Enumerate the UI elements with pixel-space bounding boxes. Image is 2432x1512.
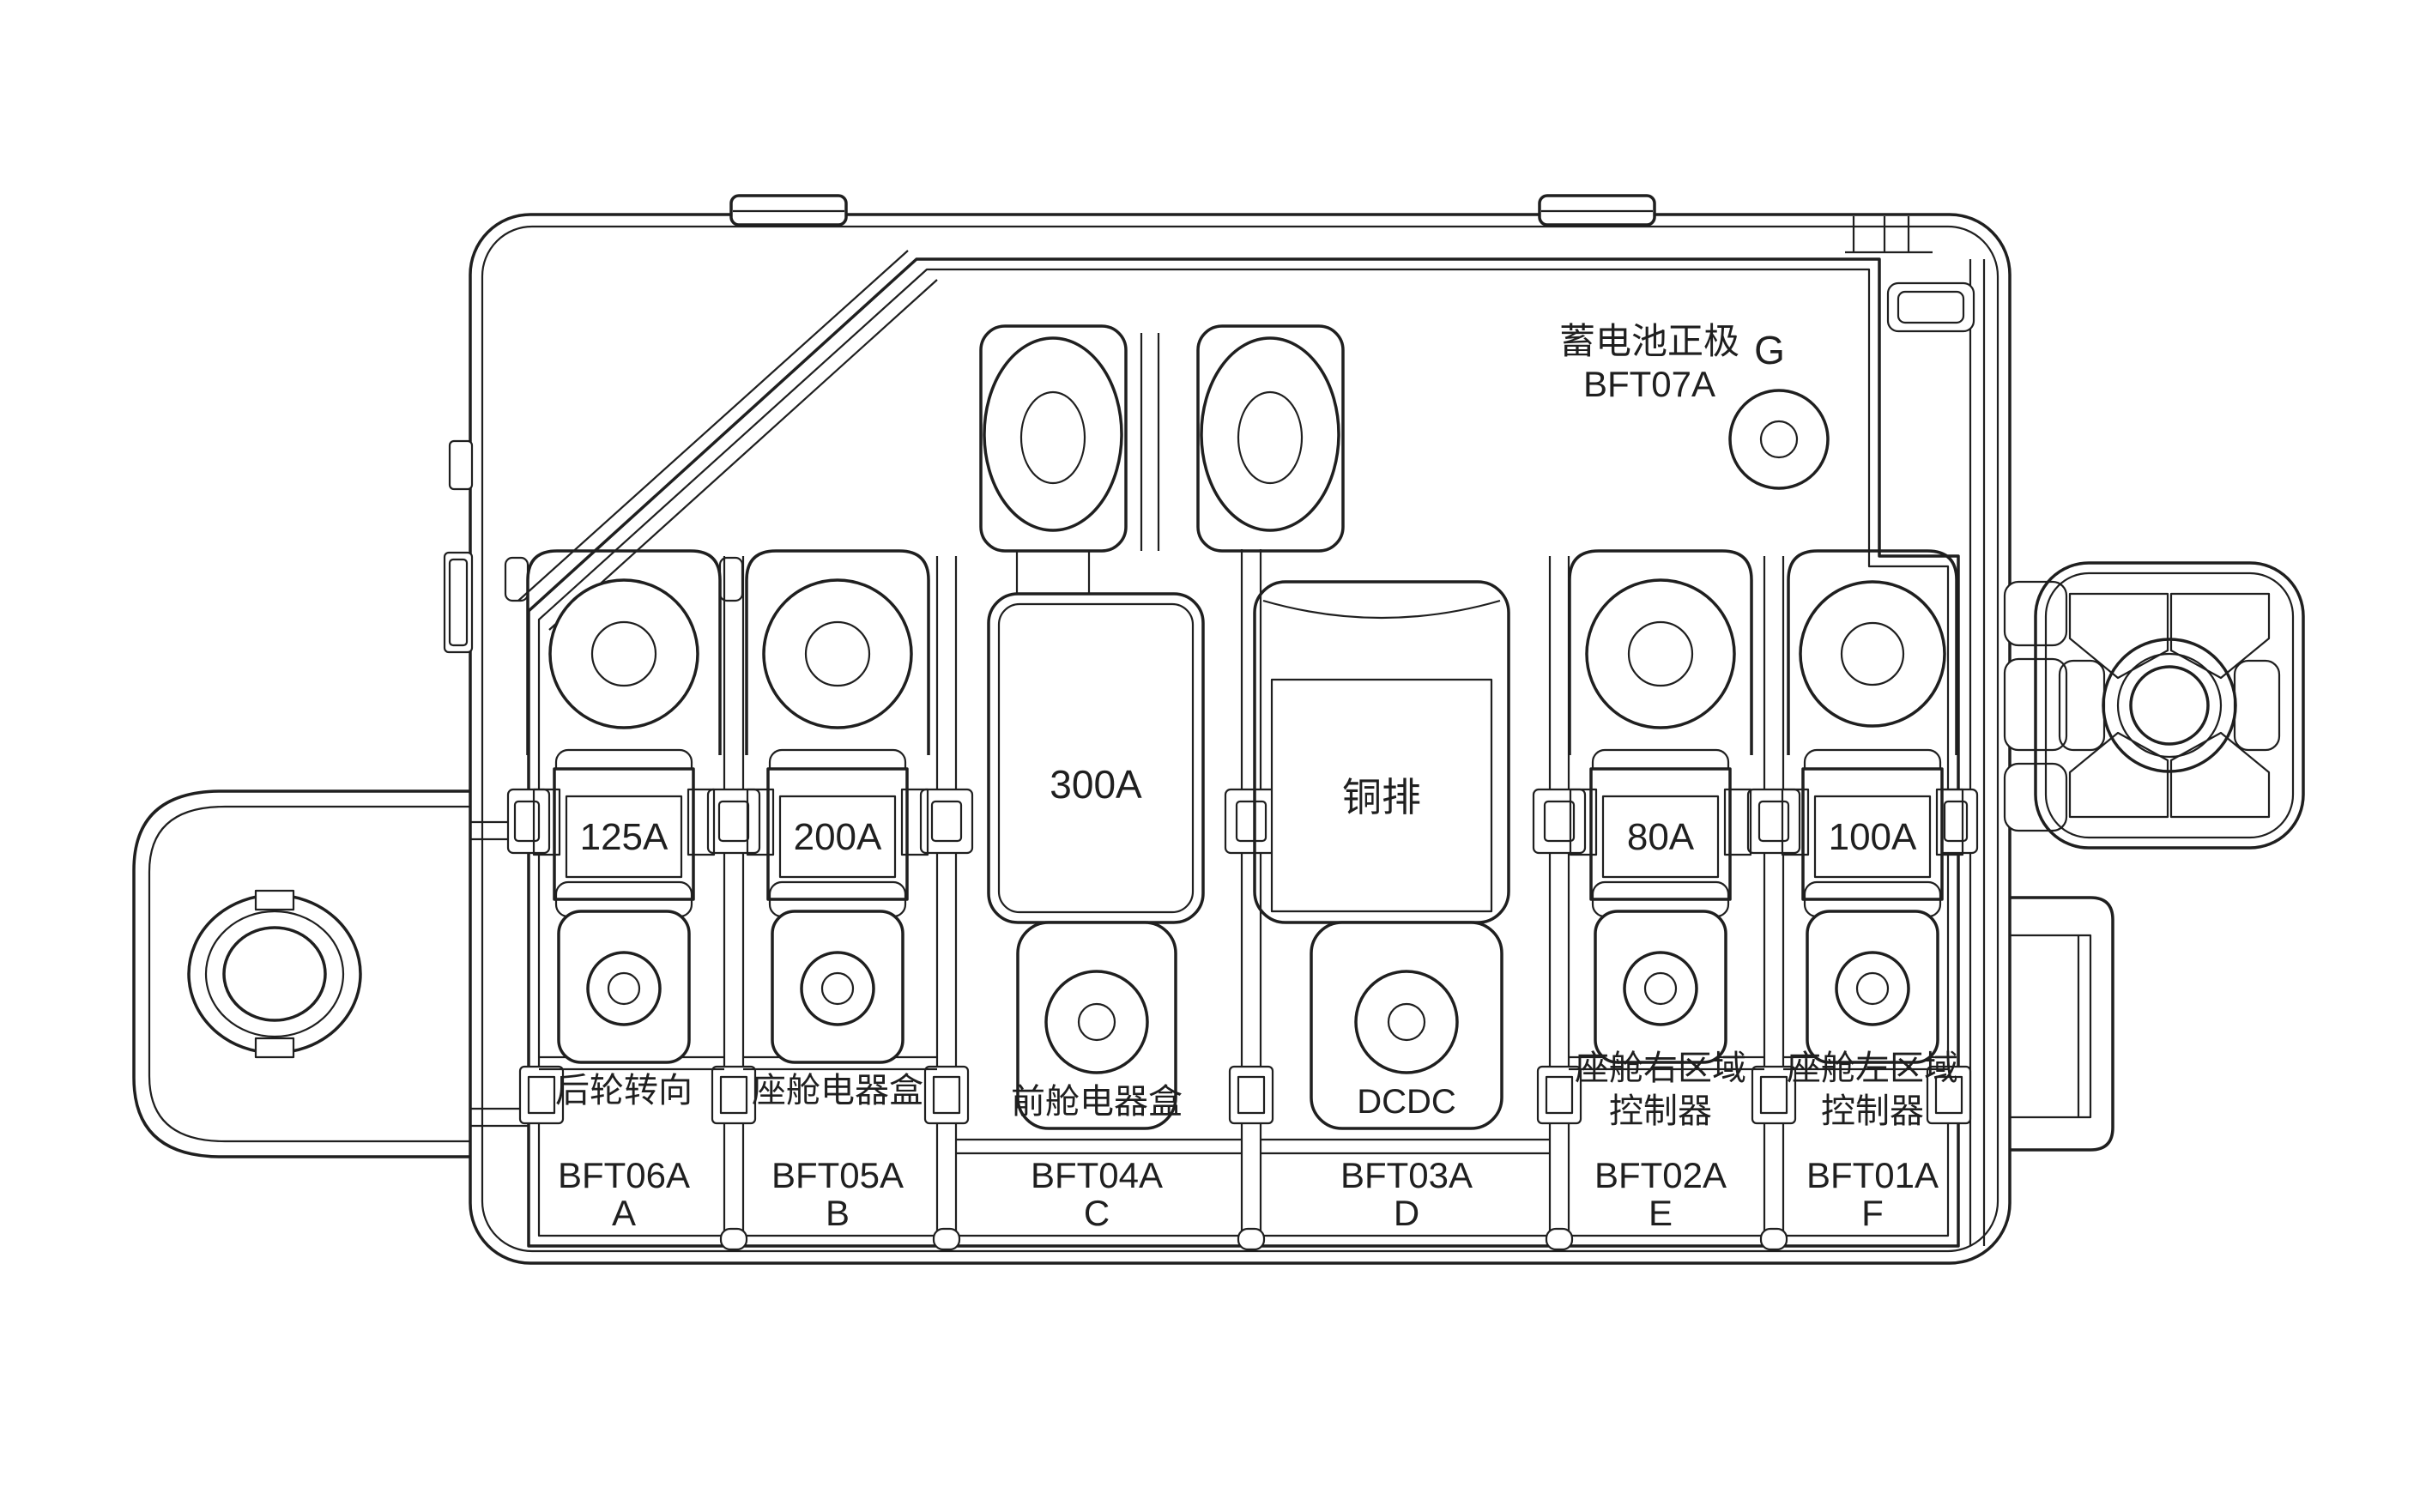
fusebox-diagram-svg: 125A 后轮转向 BFT06A A 200A 座舱电器盒 BFT05A B [0,0,2432,1512]
fuse-e-slot-letter: E [1649,1193,1673,1233]
rib-pocket-top-right [2171,594,2269,678]
terminal-lug-pad [981,326,1126,551]
fuse-a-slot-letter: A [612,1193,636,1233]
fuse-c-circuit-label: 前舱电器盒 [1011,1083,1183,1121]
fuse-a-code: BFT06A [558,1155,690,1195]
terminal-lug-hole [1238,392,1302,483]
terminal-lug-hole [1021,392,1085,483]
right-bracket-boss-hole [2103,639,2235,771]
lower-terminal-ring [802,953,874,1025]
divider-clamp-blocks [508,789,1977,853]
lower-terminal-ring [1046,971,1147,1073]
left-bracket-outer [134,791,470,1157]
fusebox-technical-diagram: 125A 后轮转向 BFT06A A 200A 座舱电器盒 BFT05A B [0,0,2432,1512]
rib-pocket-right [2235,661,2279,750]
rib-pocket-bottom-left [2070,733,2168,817]
left-bracket-inner [149,807,470,1141]
fuse-module-b: 200A 座舱电器盒 BFT05A B [747,551,929,1233]
fuse-b-rating-label: 200A [794,816,882,858]
terminal-g-label: G [1754,328,1785,372]
right-mounting-bracket [2005,563,2303,848]
left-wall-notch-upper [450,441,472,489]
fuse-c-slot-letter: C [1084,1193,1110,1233]
fuse-module-f: 100A 座舱左区域 控制器 BFT01A F [1782,551,1963,1233]
fuse-f-rating-label: 100A [1829,816,1917,858]
oval-hole-key-notch-top [256,891,293,910]
divider-foot [1761,1229,1787,1249]
terminal-lug-pad [1198,326,1343,551]
fuse-body-300a [989,594,1203,922]
lower-terminal-ring [1356,971,1457,1073]
battery-positive-title: 蓄电池正极 [1559,321,1739,361]
fuse-b-code: BFT05A [771,1155,904,1195]
battery-positive-code: BFT07A [1583,364,1715,404]
fuse-d-rating-label: 铜排 [1342,775,1421,820]
divider-foot [1238,1229,1264,1249]
left-bracket-oval-hole [189,891,360,1057]
right-bracket-rib-pockets [2060,594,2279,817]
top-mounting-tabs [731,196,1933,252]
fuse-module-e: 80A 座舱右区域 控制器 BFT02A E [1570,551,1751,1233]
rib-pocket-top-left [2070,594,2168,678]
fuse-module-a: 125A 后轮转向 BFT06A A [505,551,742,1233]
fuse-e-rating-label: 80A [1627,816,1695,858]
upper-terminal-ring [550,580,698,728]
fuse-f-circuit-label-line1: 座舱左区域 [1787,1049,1958,1087]
fuse-d-code: BFT03A [1340,1155,1473,1195]
fuse-body-300a-inner [999,604,1193,912]
fuse-a-rating-label: 125A [580,816,668,858]
terminal-lug-ring [1201,338,1339,530]
fuse-b-circuit-label: 座舱电器盒 [752,1072,923,1110]
fuse-e-code: BFT02A [1594,1155,1727,1195]
battery-positive-terminal: 蓄电池正极 BFT07A G [1559,321,1828,488]
fuse-d-circuit-label: DCDC [1357,1083,1456,1121]
fuse-a-circuit-label: 后轮转向 [555,1072,693,1110]
fuse-f-circuit-label-line2: 控制器 [1821,1092,1924,1130]
upper-terminal-ring [1800,582,1945,726]
right-bracket-plate-outer [2036,563,2303,848]
chamfer-line [518,251,908,601]
divider-foot [721,1229,747,1249]
side-connector-tab [2010,898,2113,1150]
fuse-b-slot-letter: B [826,1193,850,1233]
terminal-lug-ring [984,338,1122,530]
column-dividers [508,333,1977,1249]
fuse-f-slot-letter: F [1861,1193,1884,1233]
terminal-g-ring [1730,390,1828,488]
divider-lower-tabs [520,1067,1970,1123]
fuse-e-circuit-label-line2: 控制器 [1609,1092,1712,1130]
divider-foot [934,1229,959,1249]
lower-terminal-ring [1836,953,1909,1025]
divider-foot [1546,1229,1572,1249]
fuse-d-slot-letter: D [1394,1193,1419,1233]
top-right-latch-slot [1888,283,1974,331]
top-right-step-lines [1845,216,1933,252]
lower-terminal-ring [588,953,660,1025]
fuse-e-circuit-label-line1: 座舱右区域 [1575,1049,1746,1087]
busbar-top-curve [1263,601,1500,618]
terminal-g-hole [1761,421,1797,457]
right-bracket-plate-inner [2046,573,2293,838]
upper-terminal-ring [1587,580,1734,728]
fuse-c-code: BFT04A [1031,1155,1163,1195]
fuse-f-code: BFT01A [1806,1155,1939,1195]
fuse-module-c: 300A 前舱电器盒 BFT04A C [981,326,1203,1233]
oval-hole-key-notch-bottom [256,1038,293,1057]
fuse-c-rating-label: 300A [1050,762,1142,807]
left-wall-notch-lower [445,553,472,652]
lower-terminal-ring [1624,953,1697,1025]
upper-terminal-ring [764,580,911,728]
left-wall-notches [445,441,472,652]
rib-pocket-bottom-right [2171,733,2269,817]
